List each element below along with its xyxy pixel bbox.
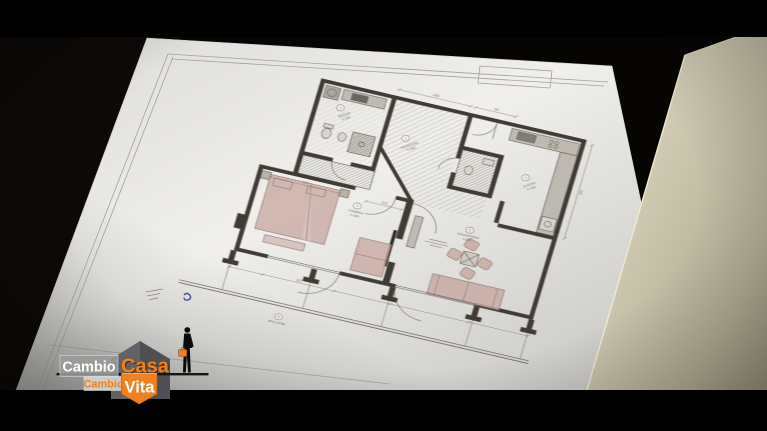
briefcase — [179, 350, 187, 357]
logo-word-vita: Vita — [125, 379, 156, 397]
scene: 210 112 144 90 260 110 1 INGRESSO h 240 … — [0, 0, 767, 431]
tv-frame: 210 112 144 90 260 110 1 INGRESSO h 240 … — [0, 0, 767, 431]
logo-word-cambio-1: Cambio — [62, 360, 115, 376]
letterbox-top — [0, 0, 767, 37]
logo-word-cambio-2: Cambio — [83, 379, 124, 391]
